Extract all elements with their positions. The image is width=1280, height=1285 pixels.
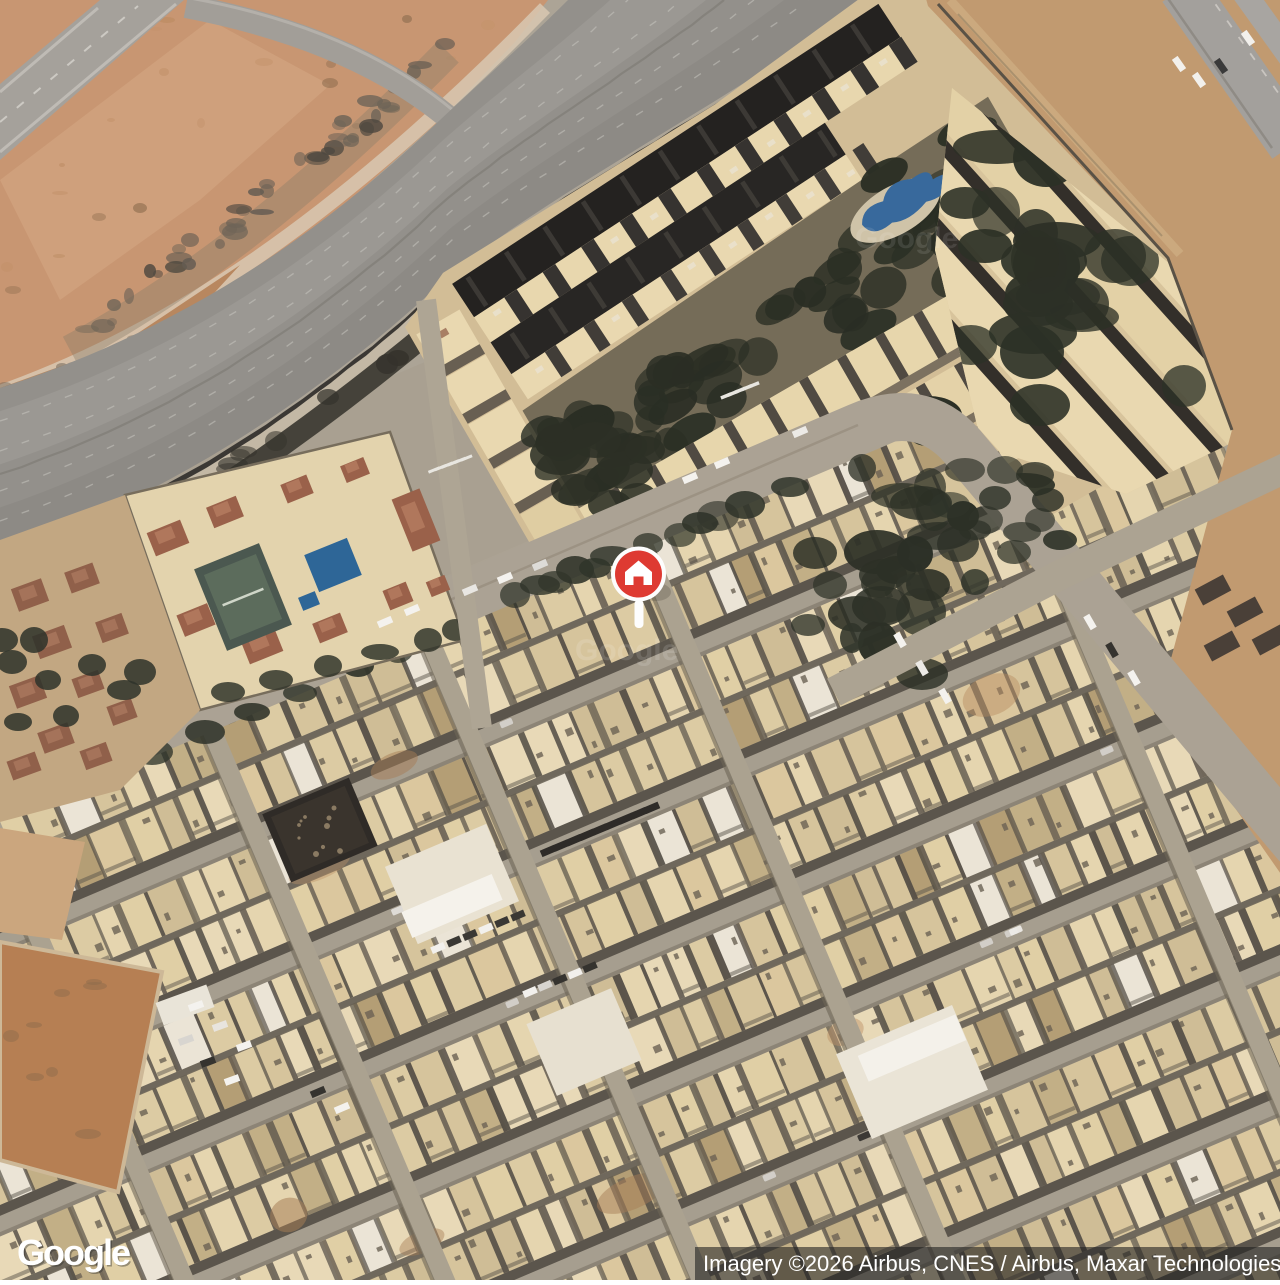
svg-text:Google: Google [575,634,678,667]
svg-text:Imagery ©2026 Airbus, CNES / A: Imagery ©2026 Airbus, CNES / Airbus, Max… [703,1251,1280,1276]
svg-text:Google: Google [855,222,958,255]
svg-text:Google: Google [17,1232,130,1273]
